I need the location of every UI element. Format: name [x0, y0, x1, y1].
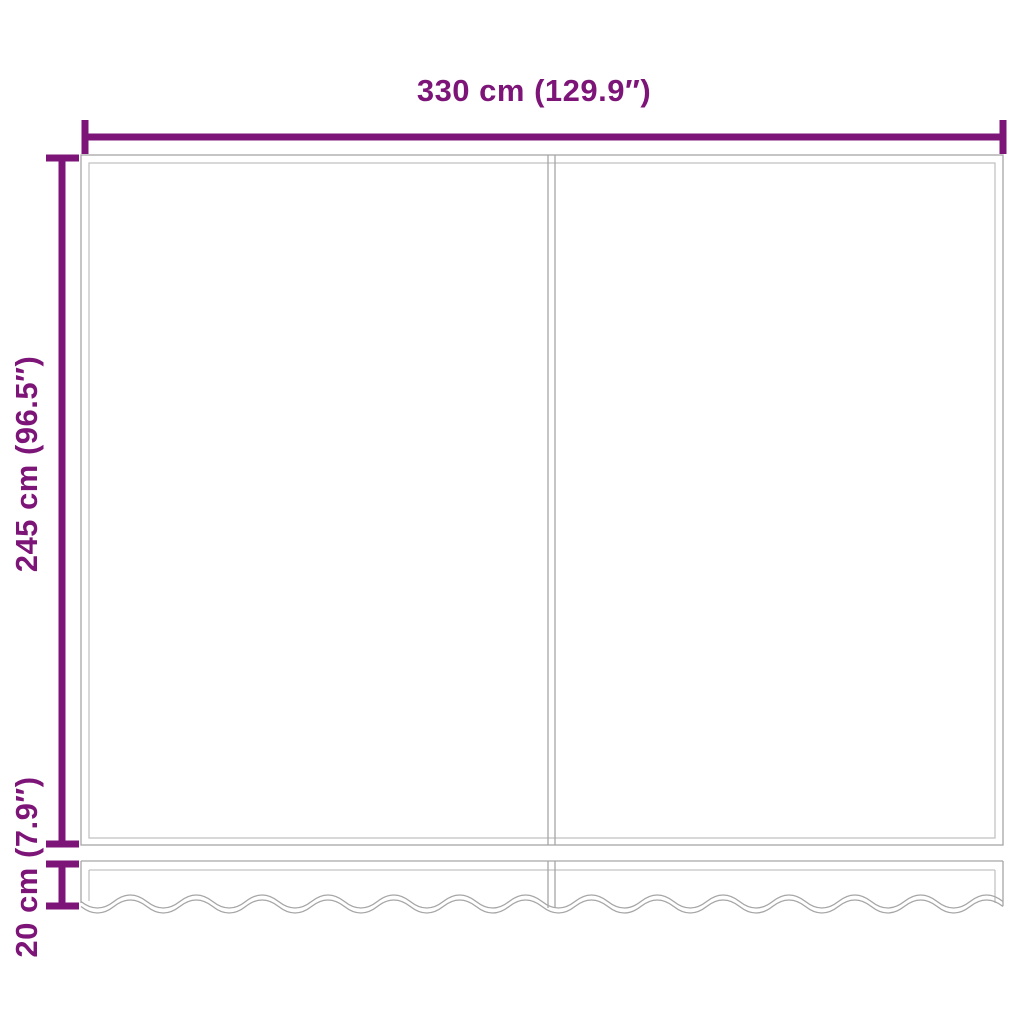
width-dimension-label: 330 cm (129.9″) — [334, 71, 734, 111]
awning-fabric-dimension-diagram: 330 cm (129.9″) 245 cm (96.5″) 20 cm (7.… — [0, 0, 1024, 1024]
valance-height-dimension-line — [46, 864, 79, 906]
fabric-panel-outer-border — [81, 155, 1003, 845]
width-dimension-line — [84, 120, 1004, 154]
fabric-panel-inner-border — [89, 163, 995, 838]
diagram-canvas — [0, 0, 1024, 1024]
valance-outline — [81, 861, 1003, 913]
height-dimension-label: 245 cm (96.5″) — [7, 264, 47, 664]
valance-height-dimension-label: 20 cm (7.9″) — [7, 667, 47, 1024]
height-dimension-line — [46, 158, 79, 844]
fabric-panel-outline — [81, 155, 1003, 845]
